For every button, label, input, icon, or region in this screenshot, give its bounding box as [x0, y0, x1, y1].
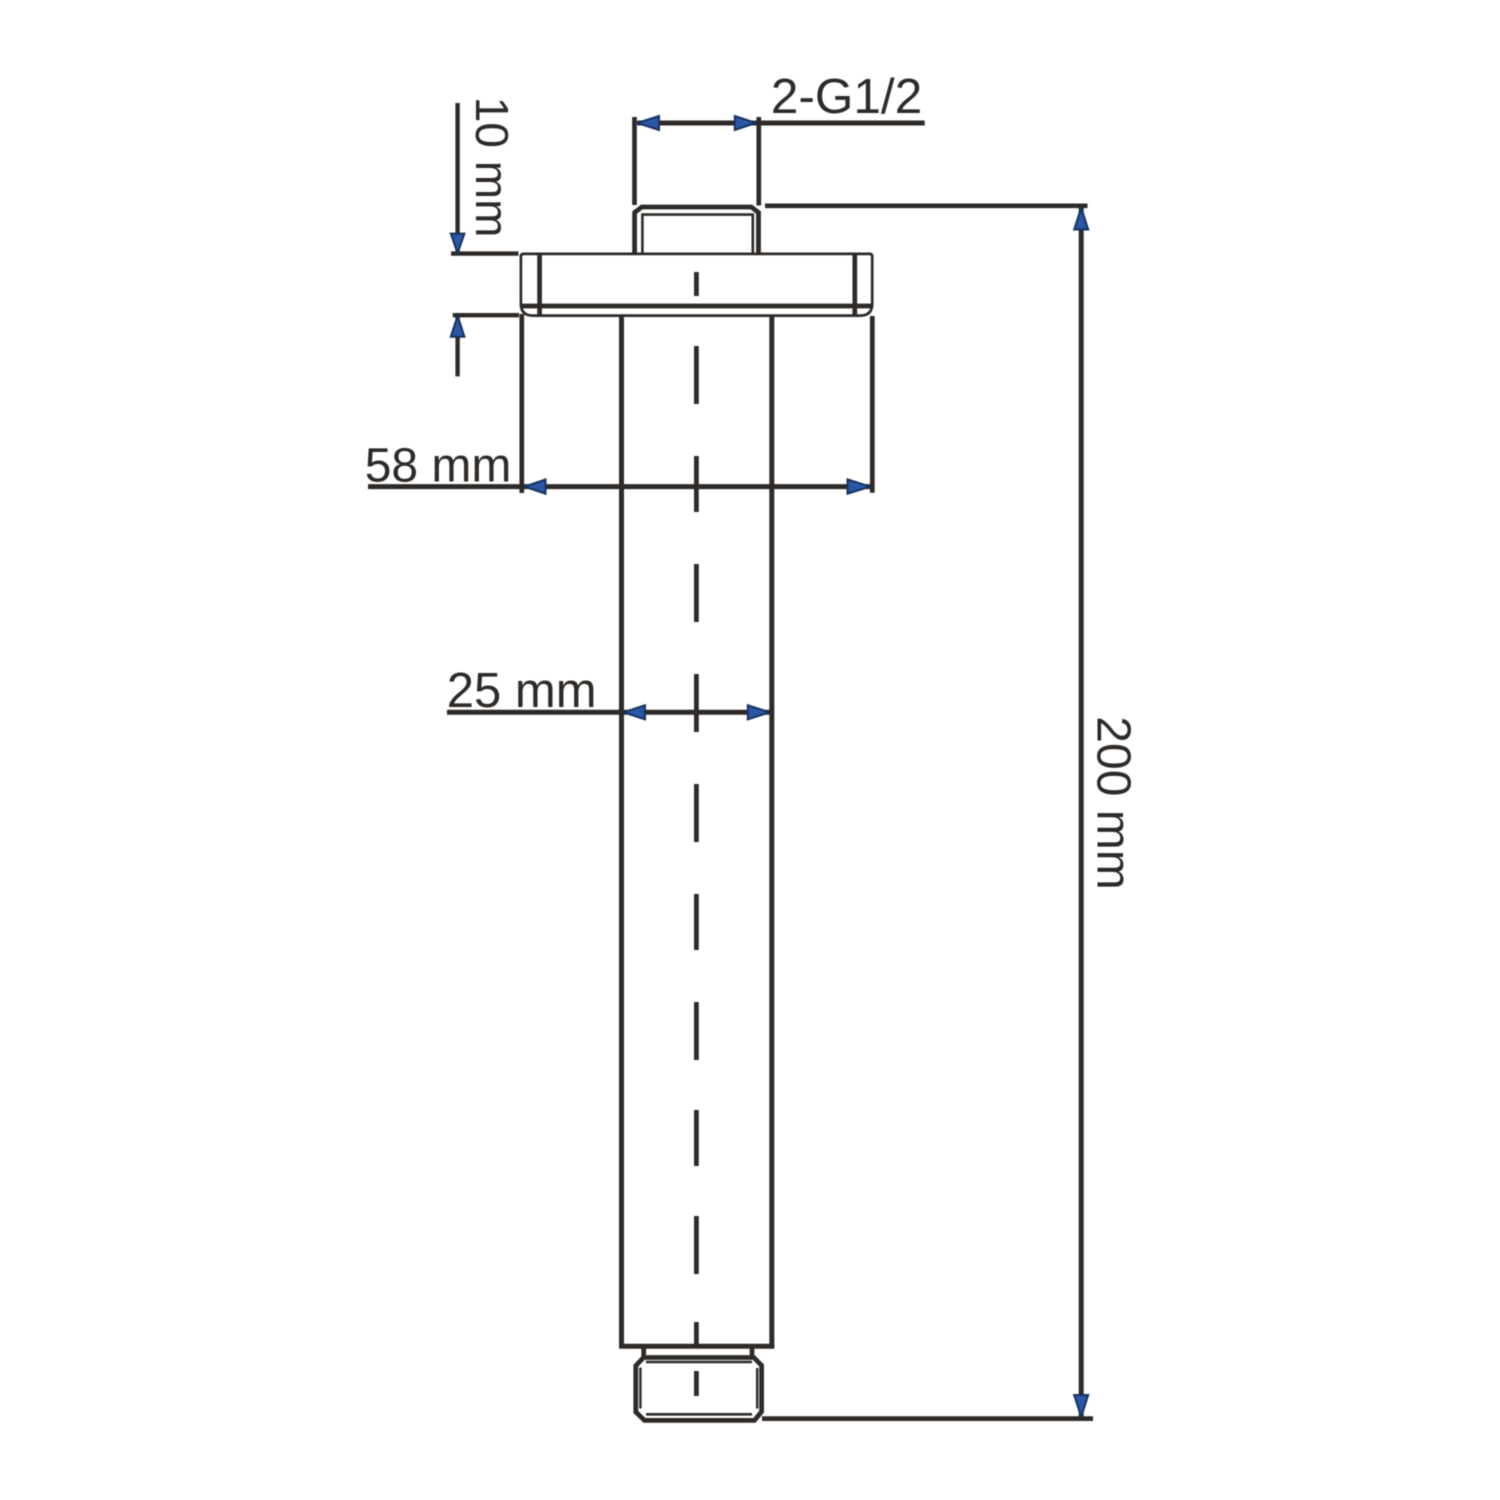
svg-text:10 mm: 10 mm	[466, 97, 518, 238]
svg-text:25 mm: 25 mm	[447, 664, 597, 718]
svg-text:200 mm: 200 mm	[1086, 716, 1139, 889]
svg-text:2-G1/2: 2-G1/2	[771, 69, 922, 124]
svg-text:58 mm: 58 mm	[365, 439, 512, 492]
